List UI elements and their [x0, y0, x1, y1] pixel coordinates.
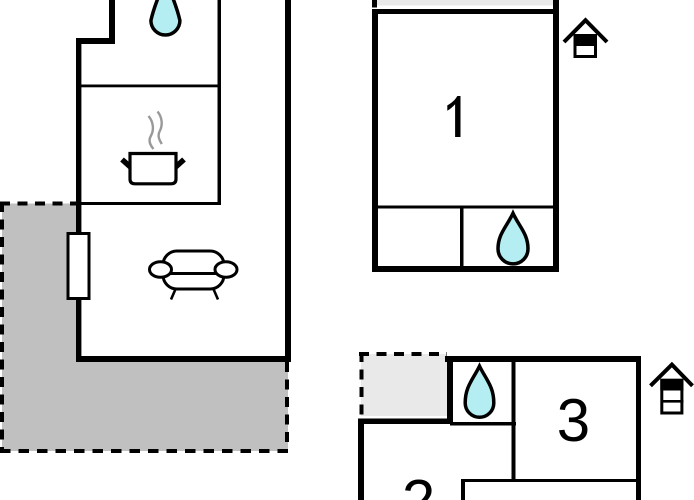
svg-text:3: 3: [557, 387, 590, 454]
svg-text:2: 2: [402, 468, 435, 500]
